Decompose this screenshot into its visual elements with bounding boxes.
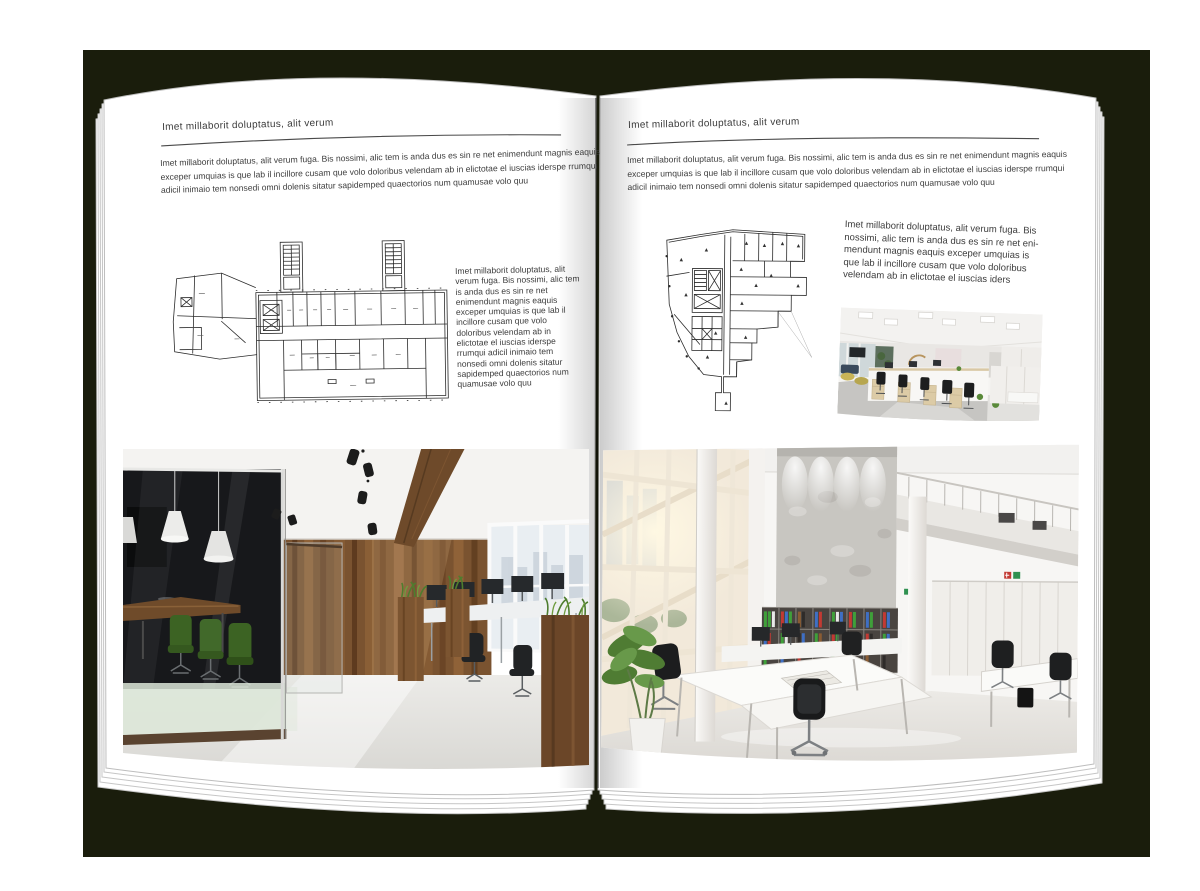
right-page-photo-atrium bbox=[601, 441, 1079, 768]
right-cabinets bbox=[990, 366, 1041, 405]
floor-plan-right-image bbox=[643, 216, 843, 428]
magazine-spread-mockup: Imet millaborit doluptatus, alit verum I… bbox=[0, 0, 1200, 891]
left-page-photo-loft-office bbox=[123, 447, 589, 771]
floor-plan-left-image bbox=[158, 228, 457, 422]
right-page-intro-paragraph: Imet millaborit doluptatus, alit verum f… bbox=[627, 148, 1080, 195]
right-page-photo-cubicles bbox=[837, 306, 1043, 425]
right-page-side-text: Imet millaborit doluptatus, alit verum f… bbox=[843, 219, 1041, 288]
left-page-side-text: Imet millaborit doluptatus, alit verum f… bbox=[455, 263, 584, 389]
concrete-feature-wall bbox=[776, 443, 897, 613]
